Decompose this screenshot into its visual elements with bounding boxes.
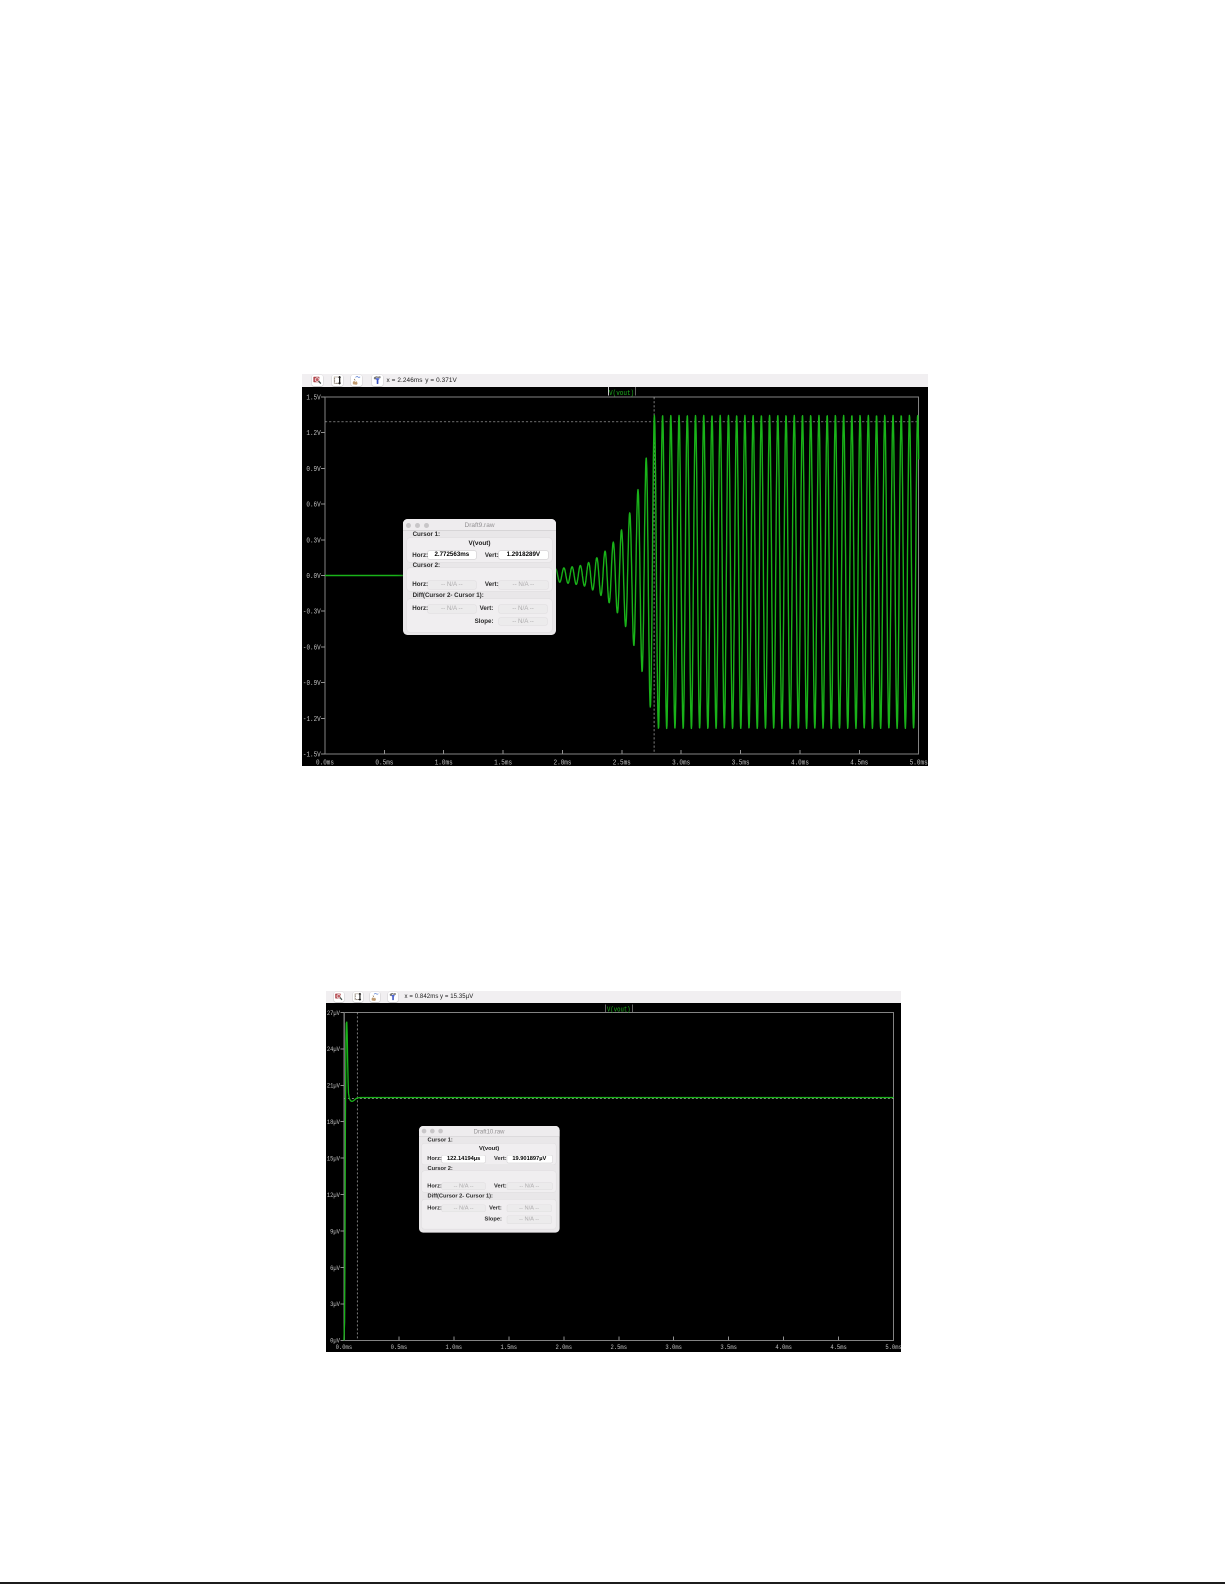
svg-text:18µV: 18µV bbox=[327, 1119, 341, 1127]
svg-text:1.5V: 1.5V bbox=[307, 394, 322, 402]
svg-text:0.0V: 0.0V bbox=[307, 573, 322, 581]
svg-text:4.0ms: 4.0ms bbox=[791, 759, 809, 766]
svg-text:24µV: 24µV bbox=[327, 1046, 341, 1054]
svg-text:4.0ms: 4.0ms bbox=[776, 1344, 792, 1352]
svg-text:-0.6V: -0.6V bbox=[303, 644, 321, 652]
svg-text:-0.3V: -0.3V bbox=[303, 608, 321, 616]
svg-text:1.2V: 1.2V bbox=[307, 430, 322, 438]
svg-text:21µV: 21µV bbox=[327, 1083, 341, 1091]
svg-text:0.5ms: 0.5ms bbox=[376, 759, 394, 766]
svg-text:1.0ms: 1.0ms bbox=[435, 759, 453, 766]
svg-text:0.9V: 0.9V bbox=[307, 465, 322, 473]
svg-text:3.0ms: 3.0ms bbox=[672, 759, 690, 766]
svg-text:-0.9V: -0.9V bbox=[303, 680, 321, 688]
svg-text:0.6V: 0.6V bbox=[307, 501, 322, 509]
svg-text:2.0ms: 2.0ms bbox=[556, 1344, 572, 1352]
svg-text:0.0ms: 0.0ms bbox=[336, 1344, 352, 1352]
svg-text:3µV: 3µV bbox=[330, 1301, 341, 1309]
svg-text:12µV: 12µV bbox=[327, 1192, 341, 1200]
svg-text:3.5ms: 3.5ms bbox=[732, 759, 750, 766]
svg-text:2.5ms: 2.5ms bbox=[611, 1344, 627, 1352]
svg-text:V(vout): V(vout) bbox=[607, 1006, 630, 1014]
svg-text:1.5ms: 1.5ms bbox=[501, 1344, 517, 1352]
svg-text:5.0ms: 5.0ms bbox=[885, 1344, 901, 1352]
svg-text:V(vout): V(vout) bbox=[609, 390, 634, 398]
svg-text:5.0ms: 5.0ms bbox=[910, 759, 928, 766]
svg-text:27µV: 27µV bbox=[327, 1010, 341, 1018]
svg-text:15µV: 15µV bbox=[327, 1155, 341, 1163]
svg-text:2.5ms: 2.5ms bbox=[613, 759, 631, 766]
svg-text:3.5ms: 3.5ms bbox=[721, 1344, 737, 1352]
svg-text:0.0ms: 0.0ms bbox=[316, 759, 334, 766]
svg-text:0.3V: 0.3V bbox=[307, 537, 322, 545]
svg-text:1.5ms: 1.5ms bbox=[494, 759, 512, 766]
svg-text:6µV: 6µV bbox=[330, 1265, 341, 1273]
svg-text:-1.2V: -1.2V bbox=[303, 715, 321, 723]
svg-text:0.5ms: 0.5ms bbox=[391, 1344, 407, 1352]
svg-text:2.0ms: 2.0ms bbox=[554, 759, 572, 766]
svg-text:9µV: 9µV bbox=[330, 1228, 341, 1236]
svg-text:1.0ms: 1.0ms bbox=[446, 1344, 462, 1352]
svg-text:-1.5V: -1.5V bbox=[303, 751, 321, 759]
svg-text:4.5ms: 4.5ms bbox=[851, 759, 869, 766]
svg-text:4.5ms: 4.5ms bbox=[830, 1344, 846, 1352]
svg-text:3.0ms: 3.0ms bbox=[666, 1344, 682, 1352]
